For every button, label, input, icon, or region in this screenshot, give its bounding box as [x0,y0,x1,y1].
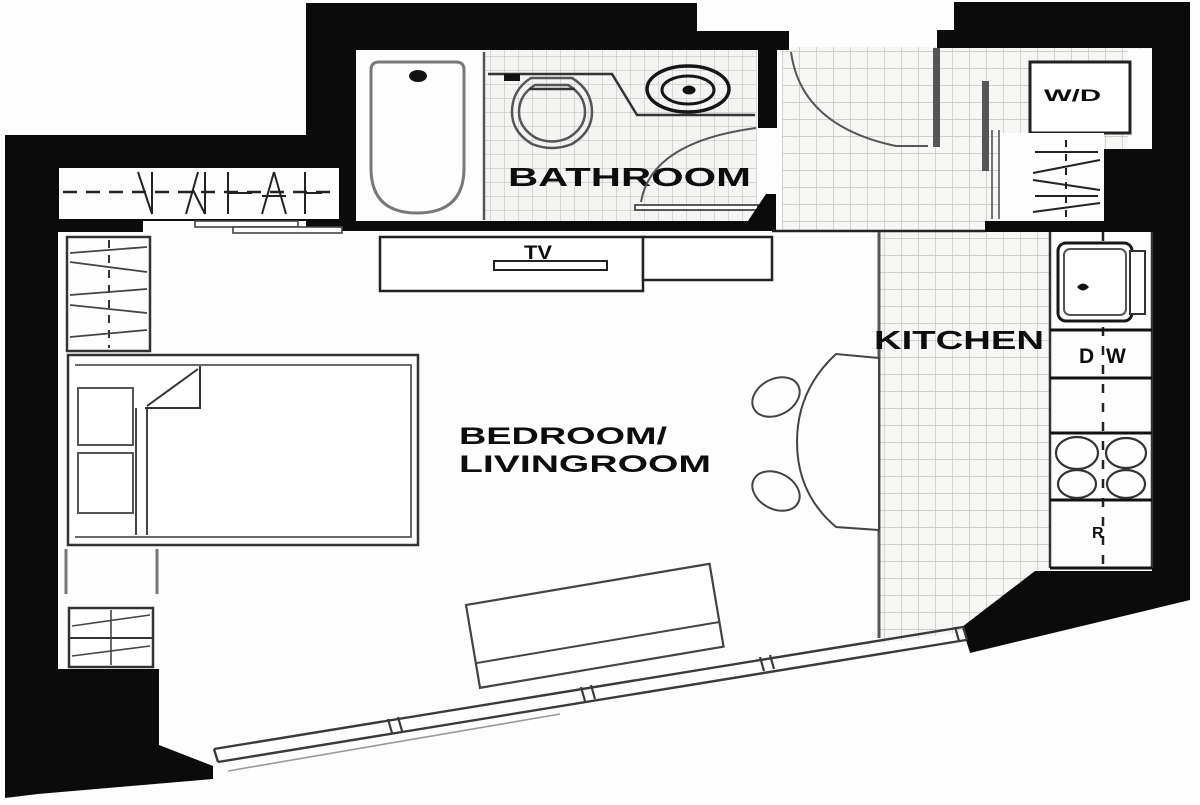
svg-text:R: R [1092,525,1104,542]
svg-text:LIVINGROOM: LIVINGROOM [459,451,711,478]
svg-text:W/D: W/D [1044,86,1101,105]
svg-text:D: D [1079,345,1094,368]
svg-text:BATHROOM: BATHROOM [508,162,751,192]
svg-text:KITCHEN: KITCHEN [874,325,1044,355]
svg-text:W: W [1106,345,1126,368]
svg-text:BEDROOM/: BEDROOM/ [459,423,668,450]
